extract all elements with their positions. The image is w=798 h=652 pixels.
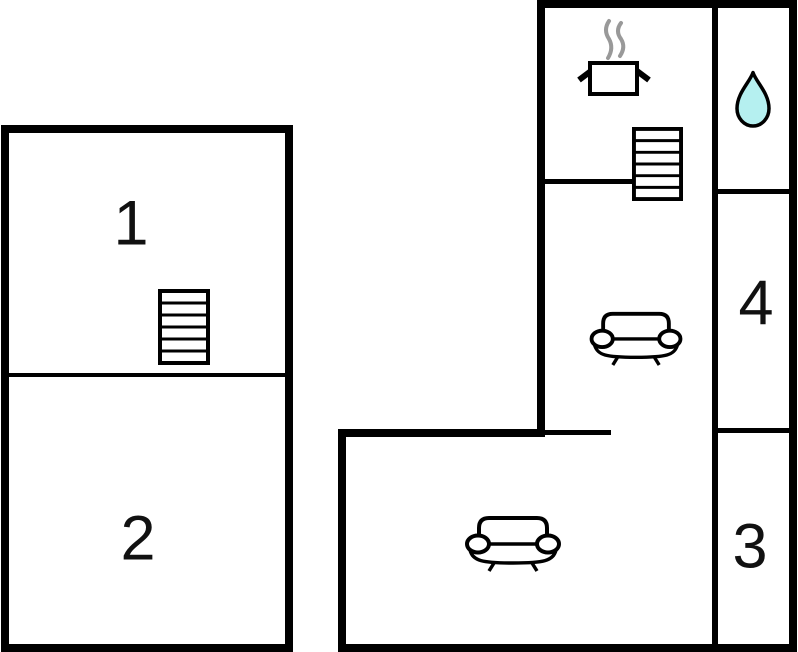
wall — [338, 429, 346, 652]
stairs-icon — [632, 127, 683, 201]
wall — [543, 179, 633, 184]
wall — [712, 428, 791, 433]
wall — [338, 429, 545, 437]
wall — [537, 0, 545, 437]
room-2-label: 2 — [120, 508, 155, 571]
room-4-label: 4 — [738, 273, 773, 336]
wall — [789, 0, 797, 652]
wall — [338, 644, 797, 652]
floor-plan: 1 2 4 3 — [0, 0, 798, 652]
stairs-icon — [158, 289, 210, 365]
wall — [712, 6, 718, 646]
sofa-icon — [590, 307, 682, 365]
steam-icon — [606, 21, 623, 58]
wall — [543, 430, 611, 435]
wall — [537, 0, 797, 8]
wall — [716, 189, 791, 194]
room-3-label: 3 — [732, 516, 767, 579]
room-1-label: 1 — [113, 193, 148, 256]
wall — [9, 373, 285, 377]
water-drop-icon — [734, 70, 772, 129]
sofa-icon — [466, 511, 560, 571]
cooking-pot-icon — [575, 16, 653, 98]
